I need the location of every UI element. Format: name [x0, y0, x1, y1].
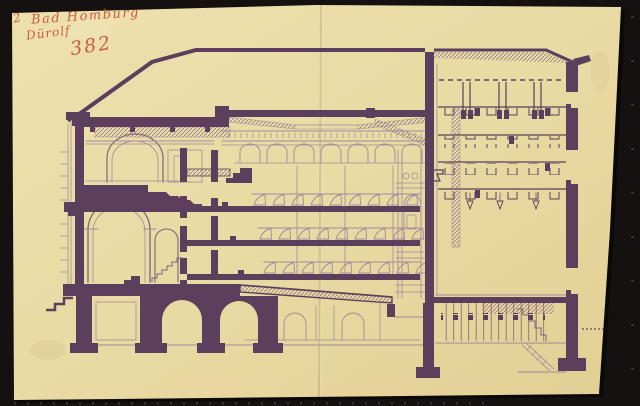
scan-photo: 2 Bad Homburg Dürolf 382 [0, 0, 640, 406]
understage-machinery [440, 303, 546, 341]
stage-floor [434, 297, 568, 303]
tier-3-floor [187, 206, 420, 212]
tier-2-floor [187, 240, 420, 246]
scan-edge-ticks [14, 402, 484, 405]
scan-edge-dots [631, 16, 634, 388]
proscenium-wall [425, 52, 434, 303]
section-drawing-sheet [0, 0, 640, 406]
auditorium-ceiling [221, 110, 431, 117]
tier-1-floor [187, 274, 420, 280]
